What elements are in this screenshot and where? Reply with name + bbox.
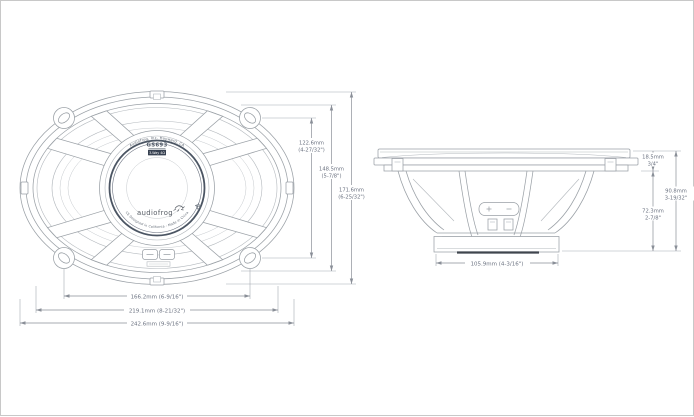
dimension-screw-vertical: 122.6mm (4-27/32") — [262, 118, 327, 258]
dim-magnet-width: 105.9mm (4-3/16") — [471, 261, 524, 267]
dim-cutout-v-in: (5-7/8") — [322, 174, 342, 180]
impedance-badge-label: 3-Way 4Ω — [149, 151, 165, 155]
technical-drawing: Audiofrog, Inc. Hayward, CA GS693 3-Way … — [1, 1, 694, 417]
dim-mounting-depth-in: 2-7/8" — [645, 216, 661, 222]
dimension-mounting-depth: 72.3mm 2-7/8" — [639, 171, 668, 251]
dim-overall-h: 242.6mm (9-9/16") — [131, 321, 184, 327]
model-number: GS693 — [146, 143, 167, 149]
mounting-tab — [54, 248, 75, 269]
dim-protrusion-mm: 18.5mm — [642, 155, 664, 161]
side-grille — [378, 149, 630, 158]
dim-mounting-depth-mm: 72.3mm — [642, 209, 664, 215]
hub: Audiofrog, Inc. Hayward, CA GS693 3-Way … — [100, 131, 215, 246]
mounting-tab — [240, 108, 261, 129]
dim-overall-depth-in: 3-19/32" — [665, 196, 688, 202]
terminal-covers — [143, 250, 175, 267]
front-view: Audiofrog, Inc. Hayward, CA GS693 3-Way … — [20, 91, 294, 285]
dim-protrusion-in: 3/4" — [648, 162, 659, 168]
dim-screw-v-in: (4-27/32") — [298, 148, 325, 154]
terminal-block — [479, 203, 519, 231]
mounting-tab — [54, 108, 75, 129]
side-flange — [374, 158, 638, 171]
dim-overall-depth-mm: 90.8mm — [665, 189, 687, 195]
dim-screw-h: 166.2mm (6-9/16") — [131, 294, 184, 300]
dim-overall-v-in: (6-25/32") — [338, 195, 365, 201]
drawing-sheet: Audiofrog, Inc. Hayward, CA GS693 3-Way … — [0, 0, 694, 416]
mounting-tab — [240, 248, 261, 269]
brand-wordmark: audiofrog — [137, 209, 173, 217]
magnet — [434, 237, 559, 253]
dimension-protrusion: 18.5mm 3/4" — [633, 151, 681, 171]
side-view — [374, 149, 638, 253]
dimension-magnet-width: 105.9mm (4-3/16") — [436, 254, 558, 267]
dim-cutout-v-mm: 148.5mm — [319, 167, 344, 173]
dim-cutout-h: 219.1mm (8-21/32") — [129, 308, 185, 314]
dim-screw-v-mm: 122.6mm — [299, 141, 324, 147]
dim-overall-v-mm: 171.6mm — [339, 188, 364, 194]
